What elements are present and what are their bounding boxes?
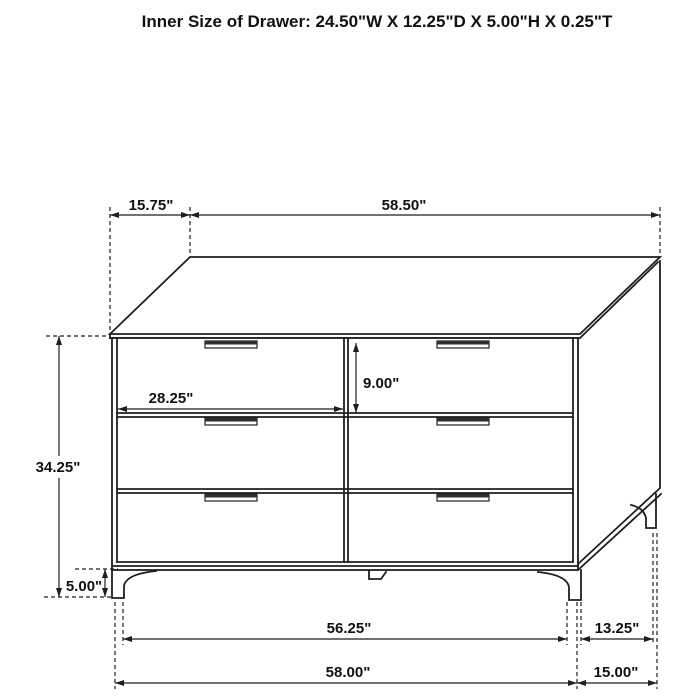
arrowhead bbox=[568, 680, 577, 686]
front-left-leg bbox=[112, 570, 156, 598]
drawer-handle-lip bbox=[437, 418, 489, 422]
dim-label-top-depth: 15.75" bbox=[129, 197, 174, 214]
dim-label-leg-height: 5.00" bbox=[66, 578, 102, 595]
arrowhead bbox=[56, 588, 62, 597]
dresser-front-face bbox=[112, 338, 578, 570]
front-right-leg bbox=[538, 570, 581, 600]
dim-label-drawer-width: 28.25" bbox=[149, 390, 194, 407]
arrowhead bbox=[651, 212, 660, 218]
drawer-handle-lip bbox=[205, 418, 257, 422]
arrowhead bbox=[558, 636, 567, 642]
dimension-diagram-page: Inner Size of Drawer: 24.50"W X 12.25"D … bbox=[0, 0, 700, 700]
arrowhead bbox=[190, 212, 199, 218]
arrowhead bbox=[123, 636, 132, 642]
drawer-handle-lip bbox=[437, 494, 489, 498]
arrowhead bbox=[56, 336, 62, 345]
arrowhead bbox=[102, 569, 108, 578]
left-dimension-group: 34.25" 5.00" bbox=[36, 336, 118, 597]
dim-label-top-width: 58.50" bbox=[382, 197, 427, 214]
arrowhead bbox=[102, 588, 108, 597]
dim-label-drawer-height: 9.00" bbox=[363, 375, 399, 392]
arrowhead bbox=[577, 680, 586, 686]
dresser-dimension-diagram: 15.75" 58.50" bbox=[0, 0, 700, 700]
drawer-handle-lip bbox=[205, 494, 257, 498]
carcass-front bbox=[112, 338, 578, 570]
drawer-handle-lip bbox=[437, 341, 489, 345]
dim-label-overall-width: 58.00" bbox=[326, 664, 371, 681]
side-panel-bottom-outer bbox=[578, 494, 661, 570]
top-panel bbox=[110, 257, 660, 334]
arrowhead bbox=[581, 636, 590, 642]
dim-label-body-height: 34.25" bbox=[36, 459, 81, 476]
dim-label-width-between-legs: 56.25" bbox=[327, 620, 372, 637]
arrowhead bbox=[644, 636, 653, 642]
dim-label-overall-depth: 15.00" bbox=[594, 664, 639, 681]
dim-label-depth-between-legs: 13.25" bbox=[595, 620, 640, 637]
arrowhead bbox=[115, 680, 124, 686]
dresser-top-surface bbox=[110, 257, 660, 338]
arrowhead bbox=[181, 212, 190, 218]
drawer-handle-lip bbox=[205, 341, 257, 345]
arrowhead bbox=[110, 212, 119, 218]
center-foot bbox=[369, 571, 386, 579]
arrowhead bbox=[648, 680, 657, 686]
